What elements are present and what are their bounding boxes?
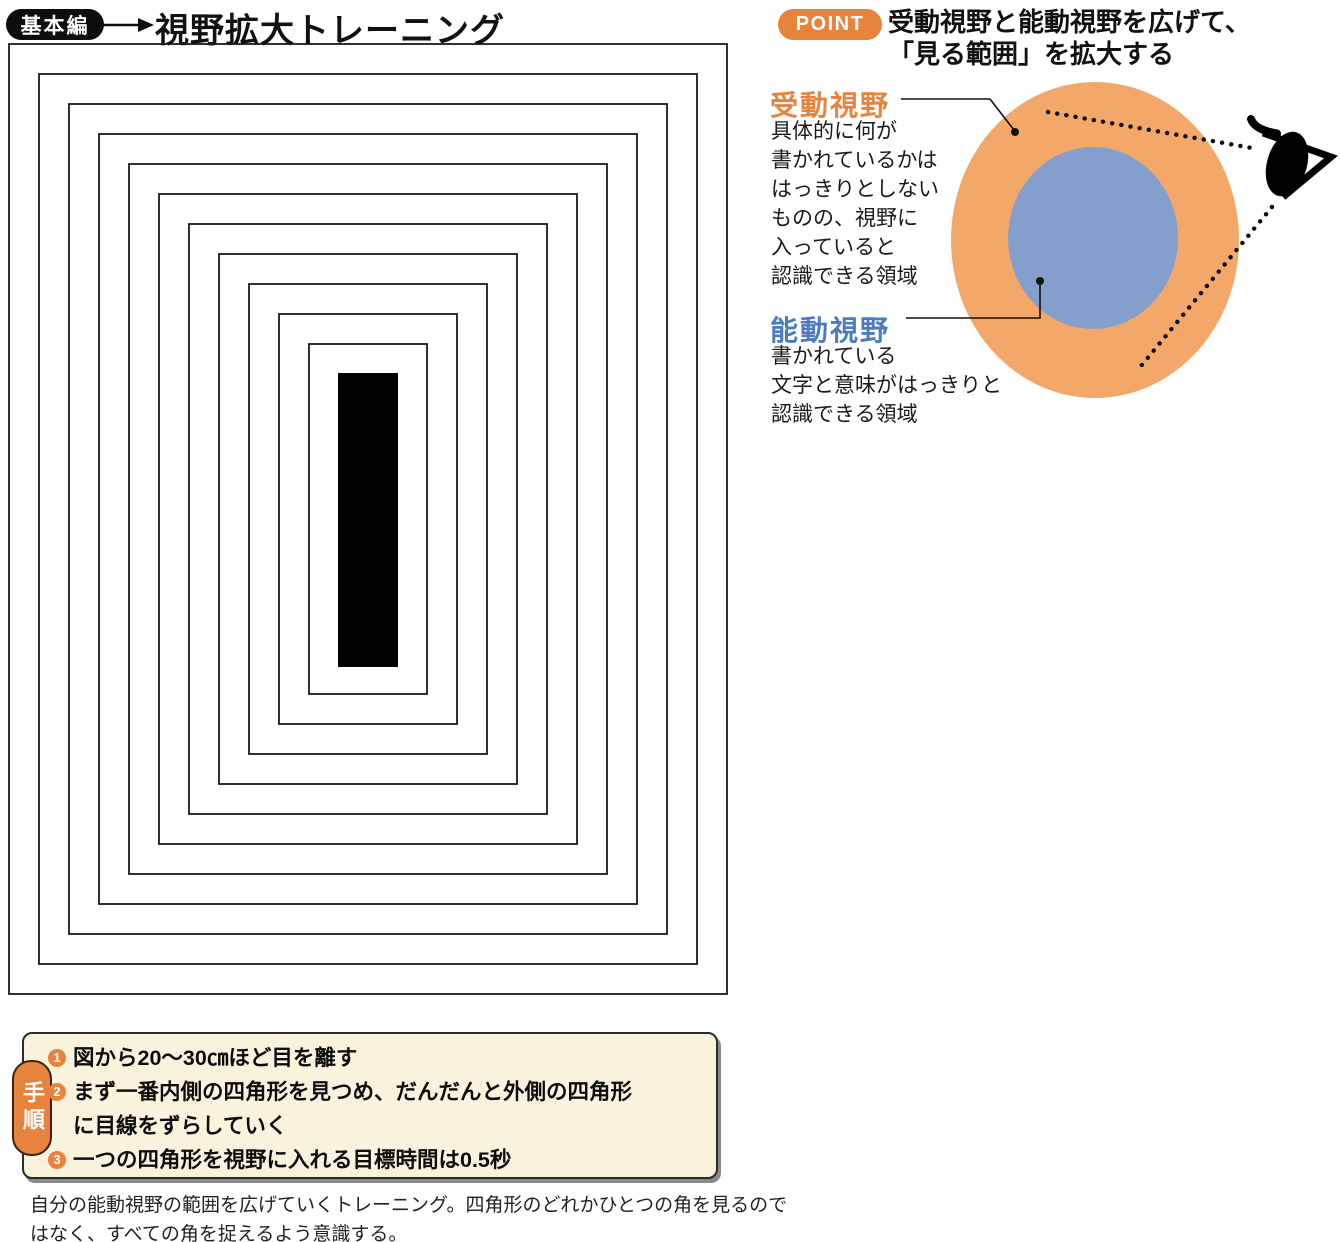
page: 基本編 視野拡大トレーニング POINT 受動視野と能動視野を広げて、「見る範囲… [0,0,1340,1242]
active-anchor-dot [1036,277,1044,285]
step-number-badge: 1 [48,1049,66,1067]
sightline-lower [1141,207,1272,366]
point-badge: POINT [778,9,882,40]
step-text: 図から20～30㎝ほど目を離す [73,1041,357,1075]
sightline-upper [1048,112,1252,148]
step-text: 一つの四角形を視野に入れる目標時間は0.5秒 [73,1143,511,1177]
steps-list: 1 図から20～30㎝ほど目を離す 2 まず一番内側の四角形を見つめ、だんだんと… [48,1041,708,1177]
steps-label: 手順 [12,1060,52,1156]
point-title: 受動視野と能動視野を広げて、「見る範囲」を拡大する [888,6,1251,70]
header-arrow-icon [102,16,154,34]
center-focus-bar [338,373,398,667]
active-vision-description: 書かれている文字と意味がはっきりと認識できる領域 [771,342,1002,429]
step-item: 2 まず一番内側の四角形を見つめ、だんだんと外側の四角形に目線をずらしていく [48,1075,708,1143]
step-item: 3 一つの四角形を視野に入れる目標時間は0.5秒 [48,1143,708,1177]
step-number-badge: 3 [48,1151,66,1169]
kihon-badge: 基本編 [6,9,104,40]
passive-anchor-dot [1011,128,1019,136]
step-text: まず一番内側の四角形を見つめ、だんだんと外側の四角形に目線をずらしていく [73,1075,632,1143]
step-number-badge: 2 [48,1083,66,1101]
step-item: 1 図から20～30㎝ほど目を離す [48,1041,708,1075]
concentric-rectangles-figure [8,43,728,995]
figure-caption: 自分の能動視野の範囲を広げていくトレーニング。四角形のどれかひとつの角を見るので… [30,1191,787,1242]
passive-vision-description: 具体的に何が書かれているかははっきりとしないものの、視野に入っていると認識できる… [771,117,939,291]
active-vision-circle [1008,147,1178,329]
eye-icon [1251,119,1331,201]
